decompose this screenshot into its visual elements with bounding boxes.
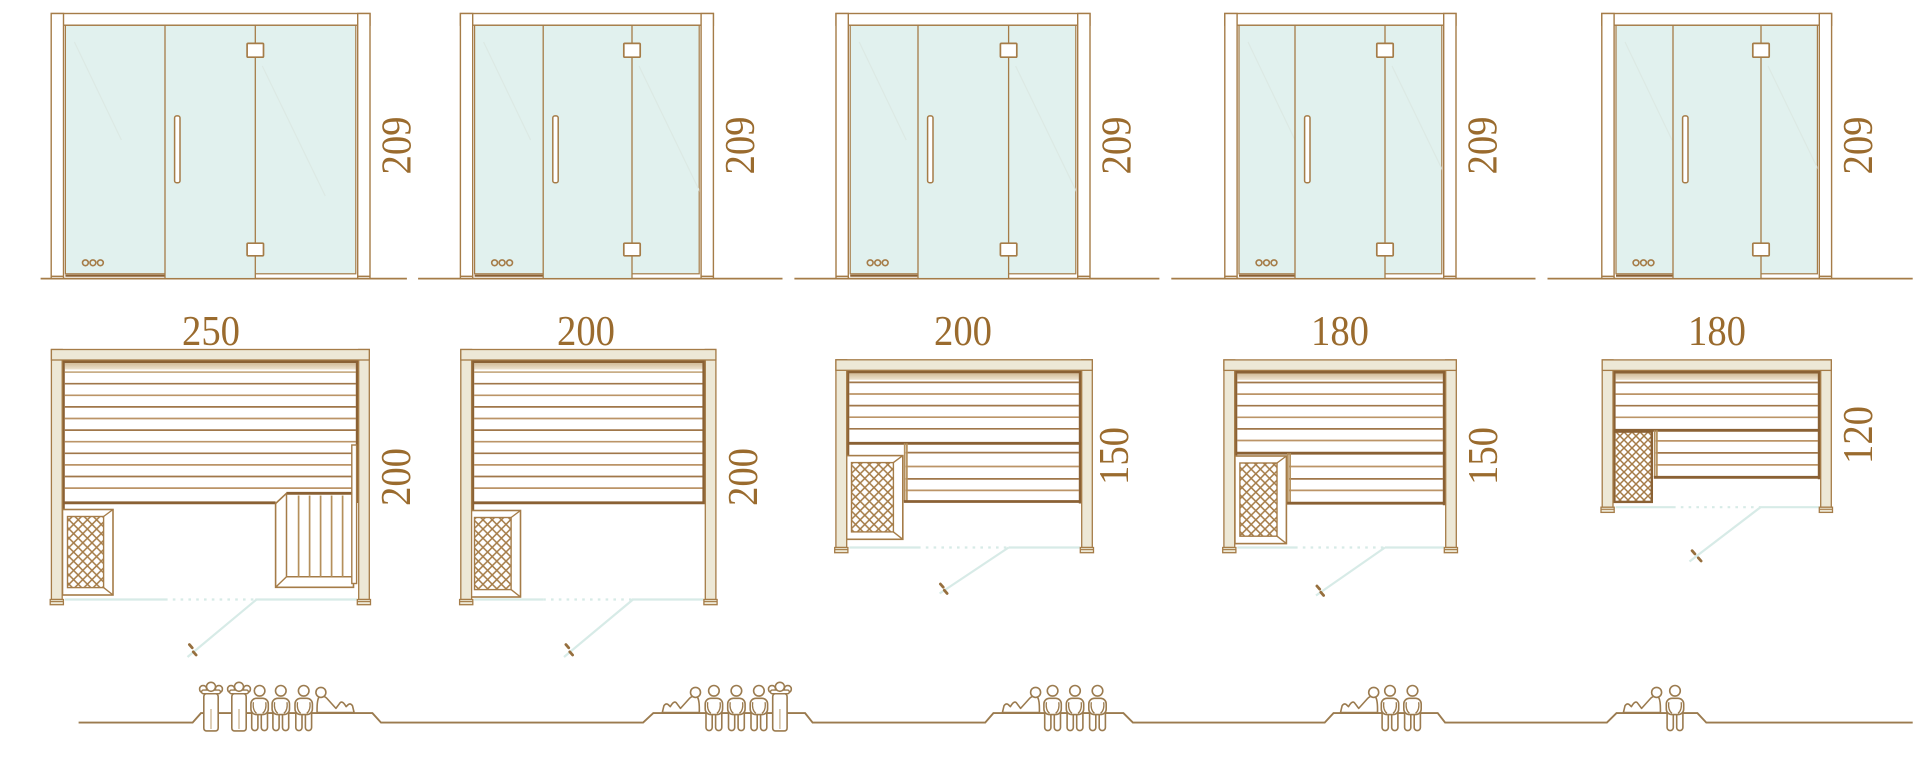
svg-text:209: 209 bbox=[1460, 117, 1506, 175]
svg-text:209: 209 bbox=[718, 117, 764, 175]
svg-text:200: 200 bbox=[374, 448, 420, 506]
svg-text:250: 250 bbox=[182, 309, 240, 355]
svg-text:180: 180 bbox=[1311, 309, 1369, 355]
svg-text:209: 209 bbox=[1094, 117, 1140, 175]
svg-text:209: 209 bbox=[374, 117, 420, 175]
svg-text:200: 200 bbox=[934, 309, 992, 355]
svg-text:209: 209 bbox=[1836, 117, 1882, 175]
svg-text:200: 200 bbox=[721, 448, 767, 506]
svg-text:150: 150 bbox=[1092, 427, 1138, 485]
svg-text:180: 180 bbox=[1688, 309, 1746, 355]
svg-text:200: 200 bbox=[557, 309, 615, 355]
svg-text:120: 120 bbox=[1836, 406, 1882, 464]
svg-text:150: 150 bbox=[1461, 427, 1507, 485]
